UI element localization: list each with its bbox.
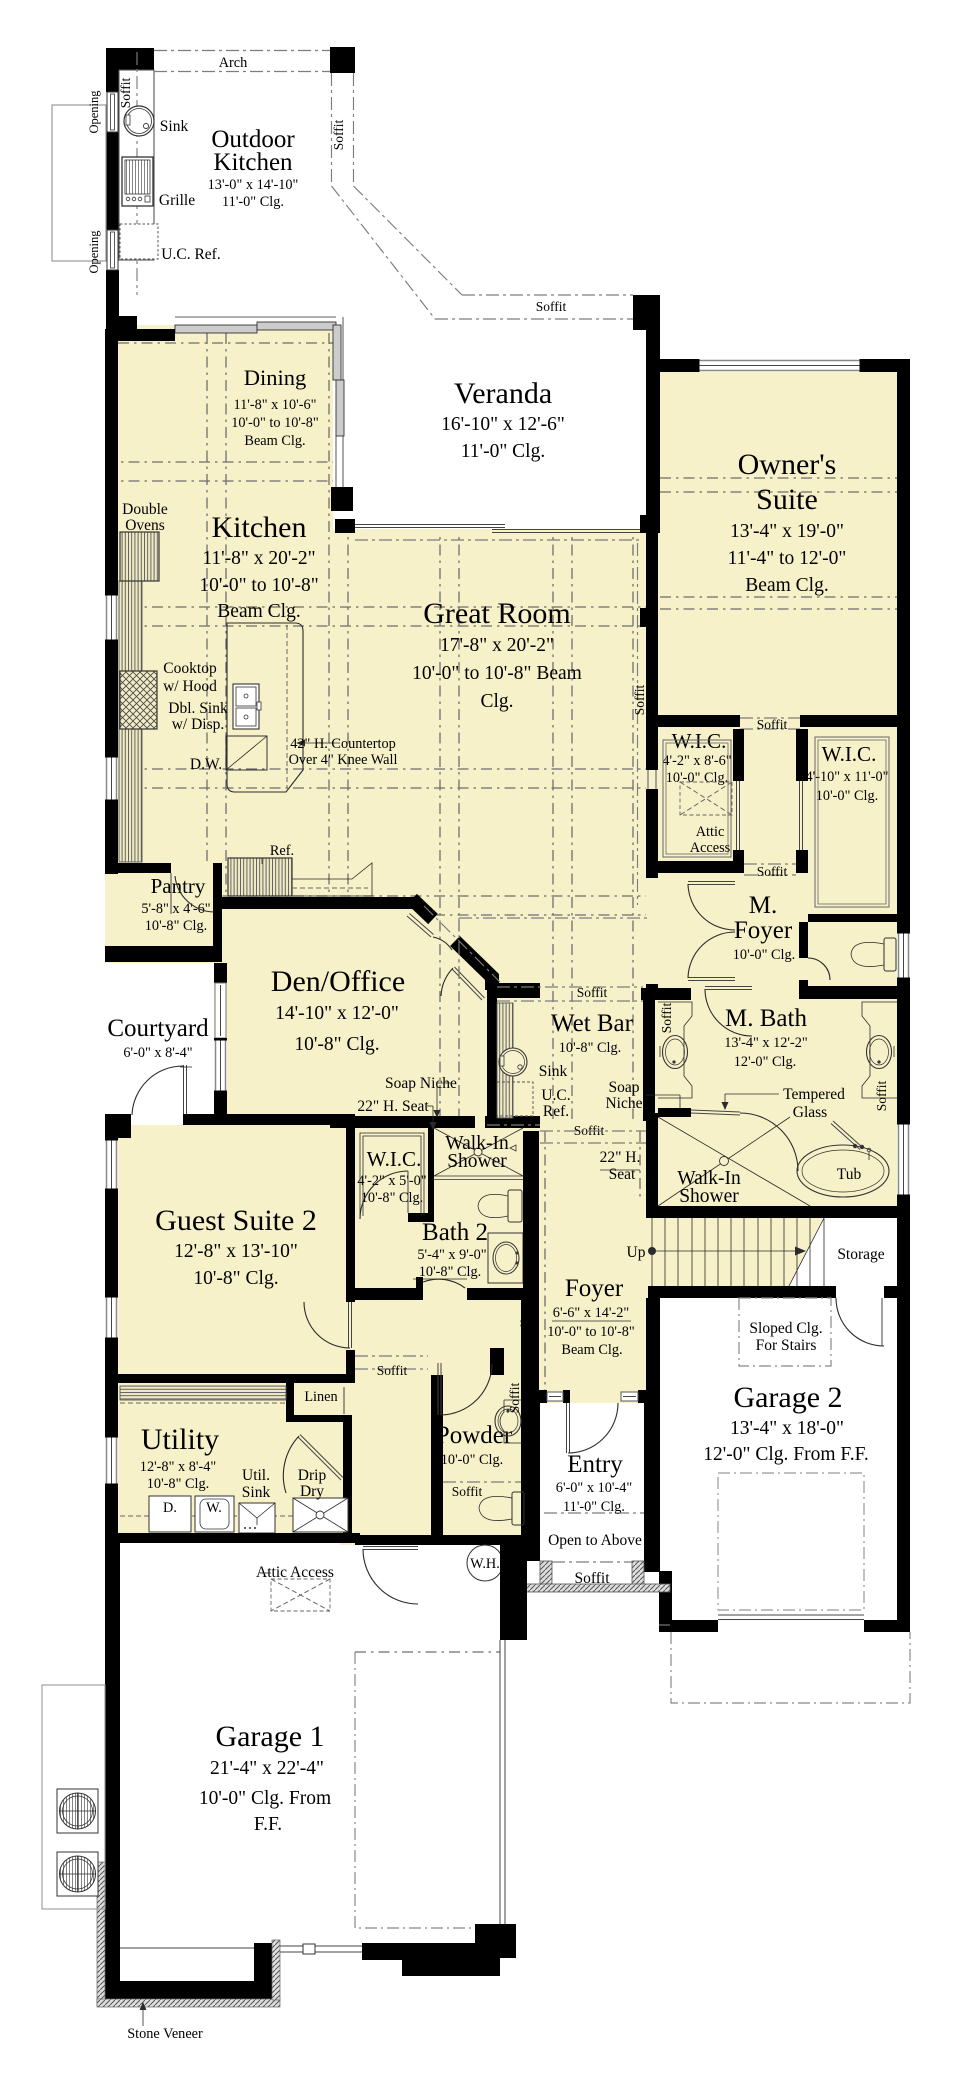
svg-text:10'-8" Clg.: 10'-8" Clg. bbox=[294, 1034, 379, 1055]
svg-text:14'-10" x 12'-0": 14'-10" x 12'-0" bbox=[275, 1003, 399, 1024]
svg-text:W.H.: W.H. bbox=[470, 1556, 500, 1572]
svg-text:Beam Clg.: Beam Clg. bbox=[244, 433, 305, 449]
svg-text:10'-8" Clg.: 10'-8" Clg. bbox=[193, 1268, 278, 1289]
svg-text:Dining: Dining bbox=[244, 365, 307, 390]
svg-text:Soffit: Soffit bbox=[659, 1003, 674, 1034]
svg-text:Kitchen: Kitchen bbox=[212, 511, 307, 544]
svg-text:Ovens: Ovens bbox=[125, 517, 165, 534]
svg-text:Beam Clg.: Beam Clg. bbox=[745, 575, 828, 596]
svg-text:U.C.: U.C. bbox=[541, 1087, 570, 1104]
svg-text:Soap: Soap bbox=[609, 1079, 640, 1096]
svg-text:Storage: Storage bbox=[837, 1246, 884, 1263]
svg-text:21'-4" x 22'-4": 21'-4" x 22'-4" bbox=[210, 1758, 324, 1779]
svg-text:12'-0" Clg. From F.F.: 12'-0" Clg. From F.F. bbox=[703, 1444, 868, 1465]
svg-text:U.C. Ref.: U.C. Ref. bbox=[161, 246, 220, 263]
svg-text:Suite: Suite bbox=[756, 483, 818, 516]
svg-text:Soffit: Soffit bbox=[118, 78, 133, 109]
svg-text:Grille: Grille bbox=[159, 192, 195, 209]
svg-text:13'-4" x 19'-0": 13'-4" x 19'-0" bbox=[730, 521, 844, 542]
svg-text:Soffit: Soffit bbox=[518, 1313, 533, 1344]
svg-text:Soffit: Soffit bbox=[757, 717, 788, 732]
svg-text:10'-0" Clg.: 10'-0" Clg. bbox=[441, 1452, 503, 1468]
svg-text:M. Bath: M. Bath bbox=[725, 1005, 807, 1032]
svg-text:10'-0" to 10'-8": 10'-0" to 10'-8" bbox=[547, 1324, 635, 1340]
svg-text:Garage 2: Garage 2 bbox=[733, 1381, 842, 1414]
svg-text:11'-0" Clg.: 11'-0" Clg. bbox=[222, 194, 284, 210]
svg-text:Wet Bar: Wet Bar bbox=[551, 1010, 634, 1037]
svg-text:10'-0" to 10'-8": 10'-0" to 10'-8" bbox=[231, 415, 319, 431]
svg-text:Shower: Shower bbox=[679, 1186, 739, 1207]
svg-text:Util.: Util. bbox=[242, 1467, 270, 1484]
svg-text:10'-0" Clg. From: 10'-0" Clg. From bbox=[199, 1788, 331, 1809]
svg-text:Drip: Drip bbox=[298, 1467, 327, 1484]
svg-text:Soffit: Soffit bbox=[632, 685, 647, 716]
svg-text:Veranda: Veranda bbox=[454, 377, 552, 410]
svg-text:Opening: Opening bbox=[87, 90, 101, 134]
svg-text:Tempered: Tempered bbox=[783, 1086, 845, 1103]
svg-text:Soffit: Soffit bbox=[507, 1383, 522, 1414]
svg-text:Sink: Sink bbox=[160, 118, 189, 135]
svg-text:Soffit: Soffit bbox=[452, 1484, 483, 1499]
svg-text:Garage 1: Garage 1 bbox=[215, 1720, 324, 1753]
svg-text:13'-0" x 14'-10": 13'-0" x 14'-10" bbox=[208, 177, 299, 193]
svg-text:Dry: Dry bbox=[300, 1483, 324, 1500]
svg-text:12'-8" x 8'-4": 12'-8" x 8'-4" bbox=[140, 1459, 216, 1475]
svg-text:10'-0" to 10'-8" Beam: 10'-0" to 10'-8" Beam bbox=[412, 663, 582, 684]
svg-text:Clg.: Clg. bbox=[480, 691, 513, 712]
svg-text:13'-4" x 12'-2": 13'-4" x 12'-2" bbox=[724, 1035, 808, 1051]
svg-text:Soffit: Soffit bbox=[331, 120, 346, 151]
svg-text:10'-8" Clg.: 10'-8" Clg. bbox=[361, 1190, 423, 1206]
svg-text:Guest Suite 2: Guest Suite 2 bbox=[155, 1204, 317, 1237]
svg-text:W.I.C.: W.I.C. bbox=[822, 742, 877, 766]
svg-text:13'-4" x 18'-0": 13'-4" x 18'-0" bbox=[730, 1418, 844, 1439]
svg-text:Opening: Opening bbox=[87, 230, 101, 274]
svg-text:10'-0" Clg.: 10'-0" Clg. bbox=[666, 770, 728, 786]
svg-text:Courtyard: Courtyard bbox=[107, 1015, 209, 1042]
svg-text:12'-8" x 13'-10": 12'-8" x 13'-10" bbox=[174, 1241, 298, 1262]
svg-text:Soffit: Soffit bbox=[757, 864, 788, 879]
svg-text:Soffit: Soffit bbox=[874, 1081, 889, 1112]
svg-text:Dbl. Sink: Dbl. Sink bbox=[168, 700, 228, 717]
svg-text:Shower: Shower bbox=[447, 1151, 507, 1172]
svg-text:Soffit: Soffit bbox=[574, 1570, 610, 1587]
svg-text:10'-0" Clg.: 10'-0" Clg. bbox=[816, 788, 878, 804]
svg-text:W.I.C.: W.I.C. bbox=[367, 1147, 422, 1171]
svg-text:10'-0" Clg.: 10'-0" Clg. bbox=[733, 947, 795, 963]
svg-text:10'-8" Clg.: 10'-8" Clg. bbox=[145, 918, 207, 934]
svg-text:Utility: Utility bbox=[141, 1423, 219, 1456]
svg-text:Den/Office: Den/Office bbox=[271, 965, 405, 998]
svg-text:W.I.C.: W.I.C. bbox=[672, 729, 727, 753]
svg-text:Up: Up bbox=[627, 1244, 646, 1261]
svg-text:4'-2" x 8'-6": 4'-2" x 8'-6" bbox=[662, 753, 731, 769]
svg-text:22" H.: 22" H. bbox=[600, 1149, 641, 1166]
svg-text:Linen: Linen bbox=[304, 1389, 337, 1405]
svg-text:Beam Clg.: Beam Clg. bbox=[217, 601, 300, 622]
svg-text:10'-0" to 10'-8": 10'-0" to 10'-8" bbox=[199, 575, 318, 596]
svg-text:Open to Above: Open to Above bbox=[548, 1532, 642, 1549]
svg-text:Ref.: Ref. bbox=[270, 843, 294, 859]
svg-text:10'-8" Clg.: 10'-8" Clg. bbox=[419, 1264, 481, 1280]
svg-text:w/ Hood: w/ Hood bbox=[163, 678, 217, 695]
svg-text:W.: W. bbox=[206, 1500, 222, 1516]
svg-text:12'-0" Clg.: 12'-0" Clg. bbox=[734, 1054, 796, 1070]
svg-text:w/ Disp.: w/ Disp. bbox=[172, 716, 225, 733]
svg-text:D.W.: D.W. bbox=[190, 756, 222, 773]
svg-text:11'-8" x 20'-2": 11'-8" x 20'-2" bbox=[202, 548, 315, 569]
svg-text:Tub: Tub bbox=[837, 1166, 862, 1183]
svg-text:Great Room: Great Room bbox=[423, 597, 570, 630]
svg-text:Soffit: Soffit bbox=[577, 985, 608, 1000]
svg-text:For Stairs: For Stairs bbox=[756, 1337, 817, 1354]
svg-text:Foyer: Foyer bbox=[565, 1275, 624, 1302]
svg-text:6'-0" x 8'-4": 6'-0" x 8'-4" bbox=[123, 1045, 192, 1061]
svg-text:Pantry: Pantry bbox=[151, 874, 206, 898]
svg-text:4'-2" x 5'-0": 4'-2" x 5'-0" bbox=[357, 1173, 426, 1189]
svg-text:10'-8" Clg.: 10'-8" Clg. bbox=[147, 1476, 209, 1492]
svg-text:16'-10" x 12'-6": 16'-10" x 12'-6" bbox=[441, 414, 565, 435]
svg-text:Seat: Seat bbox=[609, 1166, 636, 1183]
svg-text:Ref.: Ref. bbox=[543, 1103, 569, 1120]
svg-text:Attic: Attic bbox=[696, 824, 725, 840]
svg-text:Sloped Clg.: Sloped Clg. bbox=[749, 1320, 822, 1337]
svg-text:Soap Niche: Soap Niche bbox=[385, 1075, 457, 1092]
svg-text:Stone Veneer: Stone Veneer bbox=[127, 2026, 203, 2042]
svg-text:42" H. Countertop: 42" H. Countertop bbox=[290, 736, 396, 752]
svg-text:Sink: Sink bbox=[242, 1484, 271, 1501]
svg-text:11'-4" to 12'-0": 11'-4" to 12'-0" bbox=[728, 548, 847, 569]
svg-text:Sink: Sink bbox=[539, 1063, 568, 1080]
svg-text:Cooktop: Cooktop bbox=[163, 660, 217, 677]
svg-text:6'-6" x 14'-2": 6'-6" x 14'-2" bbox=[553, 1305, 629, 1321]
svg-text:Foyer: Foyer bbox=[734, 917, 793, 944]
svg-text:6'-0" x 10'-4": 6'-0" x 10'-4" bbox=[556, 1480, 632, 1496]
svg-text:Double: Double bbox=[122, 501, 168, 518]
svg-text:Kitchen: Kitchen bbox=[213, 149, 293, 176]
svg-text:D.: D. bbox=[163, 1500, 177, 1516]
svg-text:Niche: Niche bbox=[605, 1095, 642, 1112]
svg-text:5'-4" x 9'-0": 5'-4" x 9'-0" bbox=[417, 1247, 486, 1263]
svg-text:Attic Access: Attic Access bbox=[256, 1564, 334, 1581]
svg-text:10'-8" Clg.: 10'-8" Clg. bbox=[559, 1040, 621, 1056]
svg-text:Soffit: Soffit bbox=[536, 299, 567, 314]
svg-text:11'-8" x 10'-6": 11'-8" x 10'-6" bbox=[233, 397, 316, 413]
svg-text:Soffit: Soffit bbox=[377, 1363, 408, 1378]
svg-text:22" H. Seat: 22" H. Seat bbox=[357, 1098, 429, 1115]
svg-text:Beam Clg.: Beam Clg. bbox=[561, 1342, 622, 1358]
svg-text:Over 4" Knee Wall: Over 4" Knee Wall bbox=[289, 752, 398, 768]
svg-text:Arch: Arch bbox=[219, 55, 248, 71]
svg-text:M.: M. bbox=[749, 892, 777, 919]
svg-text:17'-8" x 20'-2": 17'-8" x 20'-2" bbox=[440, 635, 554, 656]
svg-text:Glass: Glass bbox=[793, 1104, 827, 1121]
svg-text:11'-0" Clg.: 11'-0" Clg. bbox=[461, 441, 545, 462]
svg-text:Entry: Entry bbox=[567, 1451, 623, 1478]
svg-text:Bath 2: Bath 2 bbox=[422, 1219, 488, 1246]
svg-text:F.F.: F.F. bbox=[254, 1814, 282, 1835]
svg-text:Owner's: Owner's bbox=[738, 448, 837, 481]
svg-text:Access: Access bbox=[690, 840, 731, 856]
